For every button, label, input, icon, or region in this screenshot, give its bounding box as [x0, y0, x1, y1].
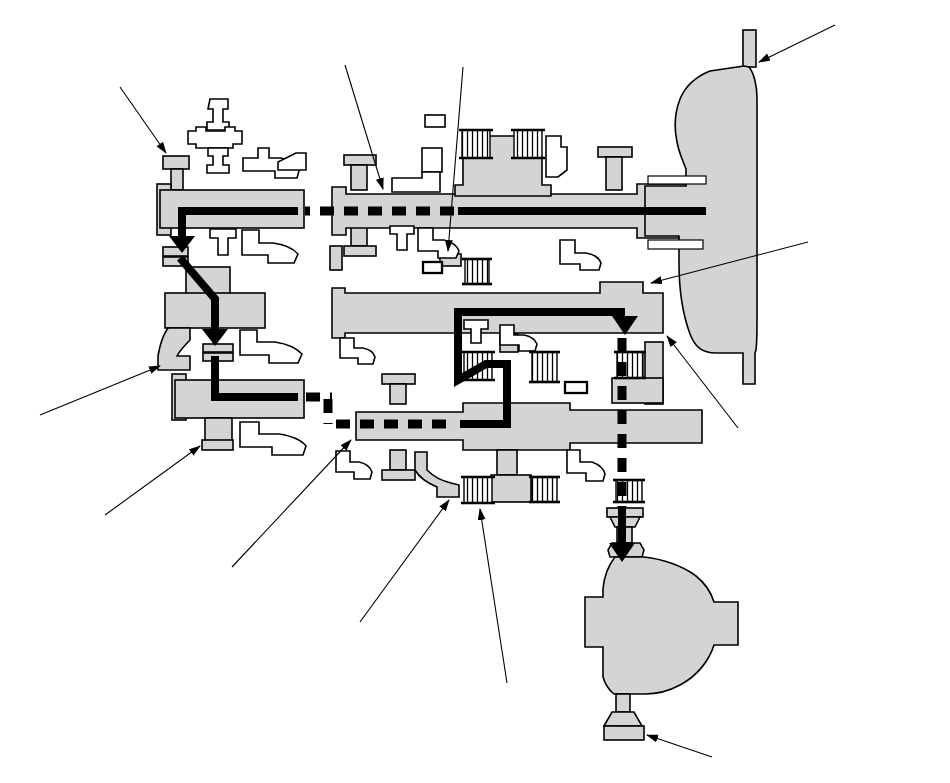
clutch-pack — [461, 477, 495, 503]
gear-column — [390, 384, 406, 404]
gear-column — [205, 418, 232, 441]
gear-outline — [418, 228, 459, 258]
gear-outline — [240, 422, 306, 455]
converter-housing — [645, 66, 757, 384]
synchro-ring — [203, 344, 233, 352]
gear-cap — [344, 155, 376, 165]
gear-cap — [163, 156, 189, 169]
callout-arrow-10 — [360, 500, 449, 622]
left-gear-cluster — [157, 99, 306, 455]
callout-arrow-11 — [480, 509, 507, 683]
gear-outline — [425, 115, 445, 127]
gear-bracket — [330, 246, 342, 270]
drum-foot — [491, 475, 531, 502]
clutch-pack — [529, 352, 560, 382]
gear-outline — [207, 148, 229, 173]
gear-cap — [382, 374, 415, 384]
diff-housing — [585, 557, 738, 694]
gear-cap — [598, 147, 632, 157]
synchro-coupling — [565, 382, 587, 393]
gear-arm — [158, 328, 190, 370]
drum-column — [497, 450, 517, 475]
output-shaft — [356, 403, 702, 450]
gear-outline — [340, 338, 375, 364]
converter-top-stub — [743, 30, 756, 67]
gear-stem — [171, 169, 183, 190]
gear-outline — [210, 229, 236, 255]
gear-outline — [336, 451, 372, 479]
callout-arrow-4 — [759, 25, 835, 62]
gear-column — [351, 165, 367, 190]
shaft-gap — [648, 240, 703, 249]
callout-arrow-8 — [105, 446, 200, 515]
callout-arrow-1 — [120, 87, 166, 153]
gear-outline — [422, 148, 442, 172]
gear-outline — [278, 153, 306, 170]
gear-outline — [546, 136, 567, 177]
clutch-pack — [511, 130, 545, 158]
clutch-pack — [529, 477, 560, 502]
callout-arrow-12 — [647, 735, 712, 757]
clutch-pack — [462, 259, 492, 284]
diff-foot — [604, 712, 642, 726]
diff-lower-stem — [616, 694, 630, 712]
diff-base-plate — [604, 726, 644, 740]
gear-outline — [242, 230, 298, 263]
gear-outline — [392, 172, 440, 192]
gear-cap — [382, 470, 415, 480]
callout-arrow-7 — [40, 366, 160, 415]
gear-cap — [202, 440, 233, 450]
clutch-pack — [459, 130, 493, 158]
transmission-power-flow-diagram — [0, 0, 950, 783]
gear-cap — [344, 246, 376, 256]
gear-outline — [207, 99, 229, 130]
gear-column — [606, 157, 622, 190]
gear-arm — [415, 452, 459, 497]
diagram-canvas — [0, 0, 950, 783]
left-cluster-gray-parts — [157, 156, 304, 450]
synchro-coupling — [423, 262, 442, 273]
gear-outline — [390, 226, 414, 250]
gear-column — [390, 450, 406, 470]
shaft-gap — [648, 176, 706, 184]
gear-outline — [567, 450, 605, 481]
gear-outline — [560, 240, 601, 270]
differential — [585, 508, 738, 740]
gear-outline — [240, 330, 302, 363]
callout-arrow-9 — [232, 440, 351, 567]
